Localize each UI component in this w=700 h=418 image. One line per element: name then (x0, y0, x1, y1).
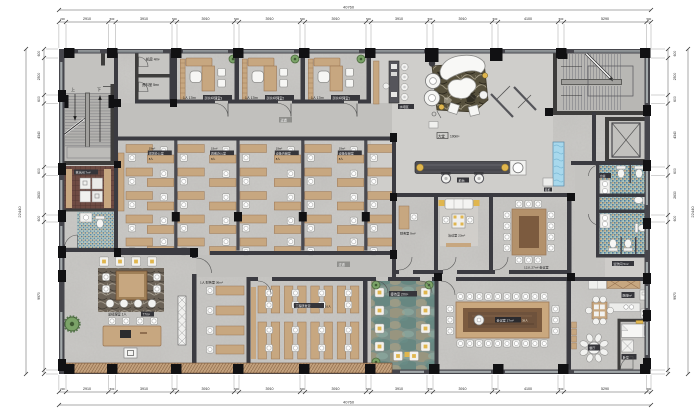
svg-text:38人: 38人 (522, 319, 528, 323)
svg-text:19m²: 19m² (211, 147, 217, 151)
svg-text:资料室 5m²: 资料室 5m² (142, 82, 160, 87)
svg-text:过道: 过道 (339, 262, 346, 267)
svg-text:600: 600 (673, 96, 677, 102)
svg-text:茶水间 7m²: 茶水间 7m² (76, 170, 91, 175)
svg-text:水吧区: 水吧区 (400, 104, 409, 109)
svg-text:设备存储室: 设备存储室 (339, 150, 354, 155)
svg-text:500: 500 (428, 17, 433, 21)
svg-text:3910: 3910 (332, 387, 340, 391)
svg-text:500: 500 (172, 17, 177, 21)
svg-text:过道: 过道 (281, 118, 288, 123)
svg-text:600: 600 (673, 51, 677, 57)
svg-text:2910: 2910 (83, 387, 91, 391)
svg-text:4340: 4340 (37, 131, 41, 139)
svg-text:3910: 3910 (266, 387, 274, 391)
svg-text:500: 500 (559, 17, 564, 21)
svg-text:3910: 3910 (266, 17, 274, 21)
svg-text:8人: 8人 (276, 157, 281, 161)
svg-text:3910: 3910 (140, 387, 148, 391)
svg-text:19m²: 19m² (339, 147, 345, 151)
svg-text:鞋柜: 鞋柜 (545, 188, 551, 192)
svg-text:4100: 4100 (524, 387, 532, 391)
svg-text:600: 600 (37, 168, 41, 174)
svg-text:500: 500 (559, 387, 564, 391)
svg-text:22440: 22440 (17, 206, 22, 218)
svg-text:3910: 3910 (202, 17, 210, 21)
svg-text:5290: 5290 (601, 17, 609, 21)
svg-text:500: 500 (493, 387, 498, 391)
svg-text:4100: 4100 (524, 17, 532, 21)
svg-text:3910: 3910 (395, 17, 403, 21)
svg-text:3910: 3910 (332, 17, 340, 21)
svg-text:3910: 3910 (395, 387, 403, 391)
svg-text:5290: 5290 (601, 387, 609, 391)
svg-text:12人 27m² 会议室: 12人 27m² 会议室 (524, 265, 549, 270)
svg-text:8人: 8人 (339, 157, 344, 161)
svg-text:200: 200 (60, 17, 65, 21)
svg-text:600: 600 (37, 51, 41, 57)
svg-text:四散办公室: 四散办公室 (211, 150, 226, 155)
svg-text:19m²: 19m² (276, 147, 282, 151)
svg-text:500: 500 (428, 387, 433, 391)
svg-text:2910: 2910 (83, 17, 91, 21)
svg-text:3910: 3910 (202, 387, 210, 391)
svg-text:餐厅: 餐厅 (589, 345, 595, 350)
svg-text:4340: 4340 (673, 131, 677, 139)
svg-text:盥洗间 5m²: 盥洗间 5m² (614, 261, 629, 266)
svg-text:500: 500 (366, 17, 371, 21)
svg-text:100m²: 100m² (450, 134, 460, 138)
svg-text:2630: 2630 (673, 191, 677, 199)
svg-text:500: 500 (300, 387, 305, 391)
svg-text:8人: 8人 (211, 157, 216, 161)
svg-text:总经理室 1人: 总经理室 1人 (108, 312, 127, 317)
svg-text:大堂: 大堂 (438, 133, 445, 138)
svg-text:会议室 27m²: 会议室 27m² (497, 317, 514, 322)
svg-text:200: 200 (60, 387, 65, 391)
svg-text:600: 600 (673, 168, 677, 174)
svg-text:600: 600 (673, 216, 677, 222)
svg-text:财务室 9m²: 财务室 9m² (400, 231, 415, 236)
svg-text:500: 500 (234, 17, 239, 21)
svg-text:2630: 2630 (37, 191, 41, 199)
svg-text:设备内储室: 设备内储室 (276, 150, 291, 155)
svg-text:600: 600 (37, 216, 41, 222)
svg-text:3910: 3910 (459, 17, 467, 21)
svg-text:22440: 22440 (690, 206, 695, 218)
svg-text:40760: 40760 (343, 5, 355, 10)
svg-text:19m²: 19m² (149, 147, 155, 151)
svg-text:600: 600 (37, 96, 41, 102)
svg-text:500: 500 (493, 17, 498, 21)
svg-text:2500: 2500 (673, 73, 677, 81)
svg-text:500: 500 (110, 387, 115, 391)
svg-text:1人 财务室 36m²: 1人 财务室 36m² (200, 280, 223, 285)
svg-text:上: 上 (71, 86, 75, 92)
svg-text:台盆: 台盆 (600, 174, 606, 178)
svg-text:9970: 9970 (37, 292, 41, 300)
svg-text:9m²: 9m² (628, 294, 633, 298)
svg-text:40760: 40760 (343, 400, 355, 405)
svg-text:500: 500 (110, 17, 115, 21)
svg-text:9970: 9970 (673, 292, 677, 300)
svg-text:深圳办公室: 深圳办公室 (149, 150, 164, 155)
svg-text:下: 下 (97, 87, 101, 92)
svg-text:500: 500 (300, 17, 305, 21)
svg-text:500: 500 (366, 387, 371, 391)
svg-text:工程研发室: 工程研发室 (296, 303, 311, 308)
svg-text:前台: 前台 (459, 178, 465, 183)
svg-text:77m²: 77m² (143, 313, 150, 317)
svg-text:洽谈室 23m²: 洽谈室 23m² (448, 233, 465, 238)
svg-text:机房 4m²: 机房 4m² (146, 57, 160, 62)
svg-text:3910: 3910 (459, 387, 467, 391)
svg-text:16人: 16人 (325, 305, 331, 309)
svg-text:500: 500 (646, 17, 651, 21)
svg-text:接待室 27m²: 接待室 27m² (391, 291, 409, 296)
svg-text:2500: 2500 (37, 73, 41, 81)
svg-text:500: 500 (172, 387, 177, 391)
svg-text:500: 500 (234, 387, 239, 391)
svg-text:3910: 3910 (140, 17, 148, 21)
svg-text:8人: 8人 (149, 157, 154, 161)
